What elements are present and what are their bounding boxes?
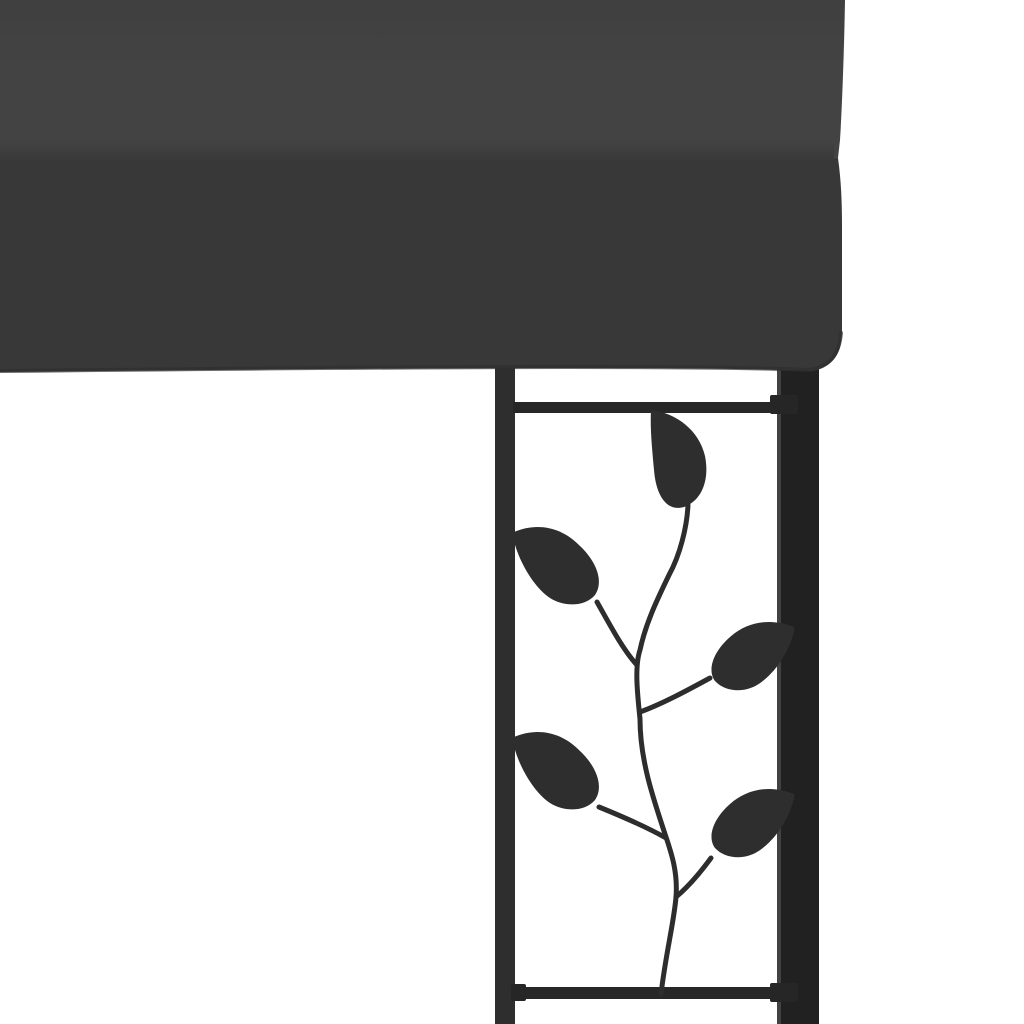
- bottom-rail-end-cap: [770, 983, 798, 1002]
- trellis-bottom-rail: [513, 987, 781, 999]
- trellis-left-bar: [495, 366, 515, 1024]
- top-rail-end-cap: [770, 395, 798, 414]
- product-photo-stage: [0, 0, 1024, 1024]
- canopy-valance: [0, 150, 842, 372]
- canopy-top-shading: [0, 0, 845, 70]
- post-edge-highlight: [777, 366, 781, 1024]
- gazebo-post: [777, 366, 819, 1024]
- bottom-rail-left-cap: [511, 984, 526, 1001]
- product-photo: [0, 0, 1024, 1024]
- canopy-fold-seam: [0, 141, 834, 162]
- trellis-top-rail: [513, 402, 781, 413]
